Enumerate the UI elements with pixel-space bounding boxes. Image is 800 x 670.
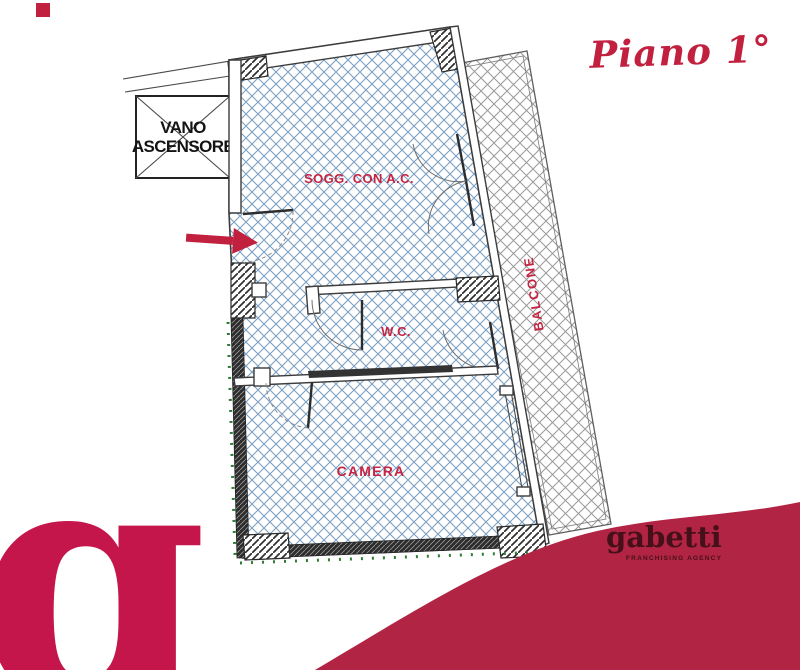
gabetti-logo: gabetti FRANCHISING AGENCY <box>606 522 736 562</box>
page-canvas: Piano 1° <box>0 0 800 670</box>
gabetti-wordmark: gabetti <box>606 522 736 554</box>
gabetti-agency-line: FRANCHISING AGENCY <box>606 555 736 562</box>
gabetti-letter-mark: g <box>0 416 208 670</box>
